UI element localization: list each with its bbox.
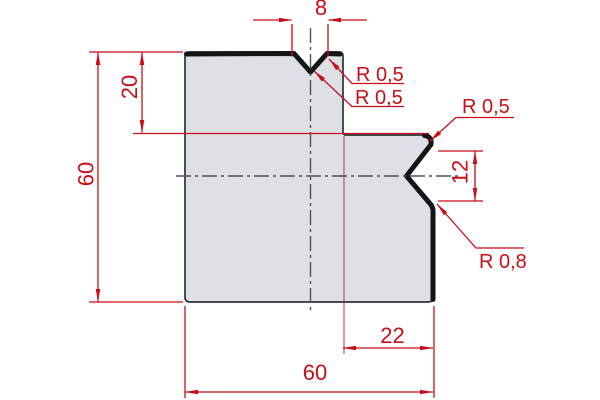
arrowhead (437, 204, 447, 215)
radius-label-side-notch-top: R 0,5 (462, 97, 510, 117)
arrowhead (343, 346, 356, 351)
arrowhead (420, 390, 433, 395)
arrowhead (473, 188, 478, 201)
radius-label-top-notch-apex: R 0,5 (355, 88, 403, 108)
arrowhead (473, 151, 478, 164)
arrowhead (140, 52, 145, 65)
leader-side-notch-top-radius (430, 118, 514, 142)
dimension-label-side-notch-height: 12 (450, 152, 472, 193)
leader-line (437, 204, 524, 248)
leader-line (430, 118, 514, 142)
dimension-label-total-height: 60 (76, 154, 98, 195)
arrowhead (430, 131, 441, 141)
radius-label-top-notch-right: R 0,5 (356, 65, 404, 85)
radius-label-side-notch-bottom: R 0,8 (479, 252, 527, 272)
dimension-label-total-width: 60 (295, 362, 335, 384)
arrowhead (96, 289, 101, 302)
arrowhead (96, 52, 101, 65)
dimension-label-top-notch-width: 8 (307, 0, 335, 19)
arrowhead (420, 346, 433, 351)
arrowhead (185, 390, 198, 395)
leader-side-notch-bottom-radius (437, 204, 524, 248)
arrowhead (140, 120, 145, 133)
drawing-linework (0, 0, 600, 400)
dimension-label-right-offset: 22 (372, 325, 413, 347)
arrowhead (279, 18, 292, 23)
technical-drawing: 8 20 60 R 0,5 R 0,5 R 0,5 12 R 0,8 22 60 (0, 0, 600, 400)
dimension-label-shoulder-depth: 20 (119, 67, 141, 107)
